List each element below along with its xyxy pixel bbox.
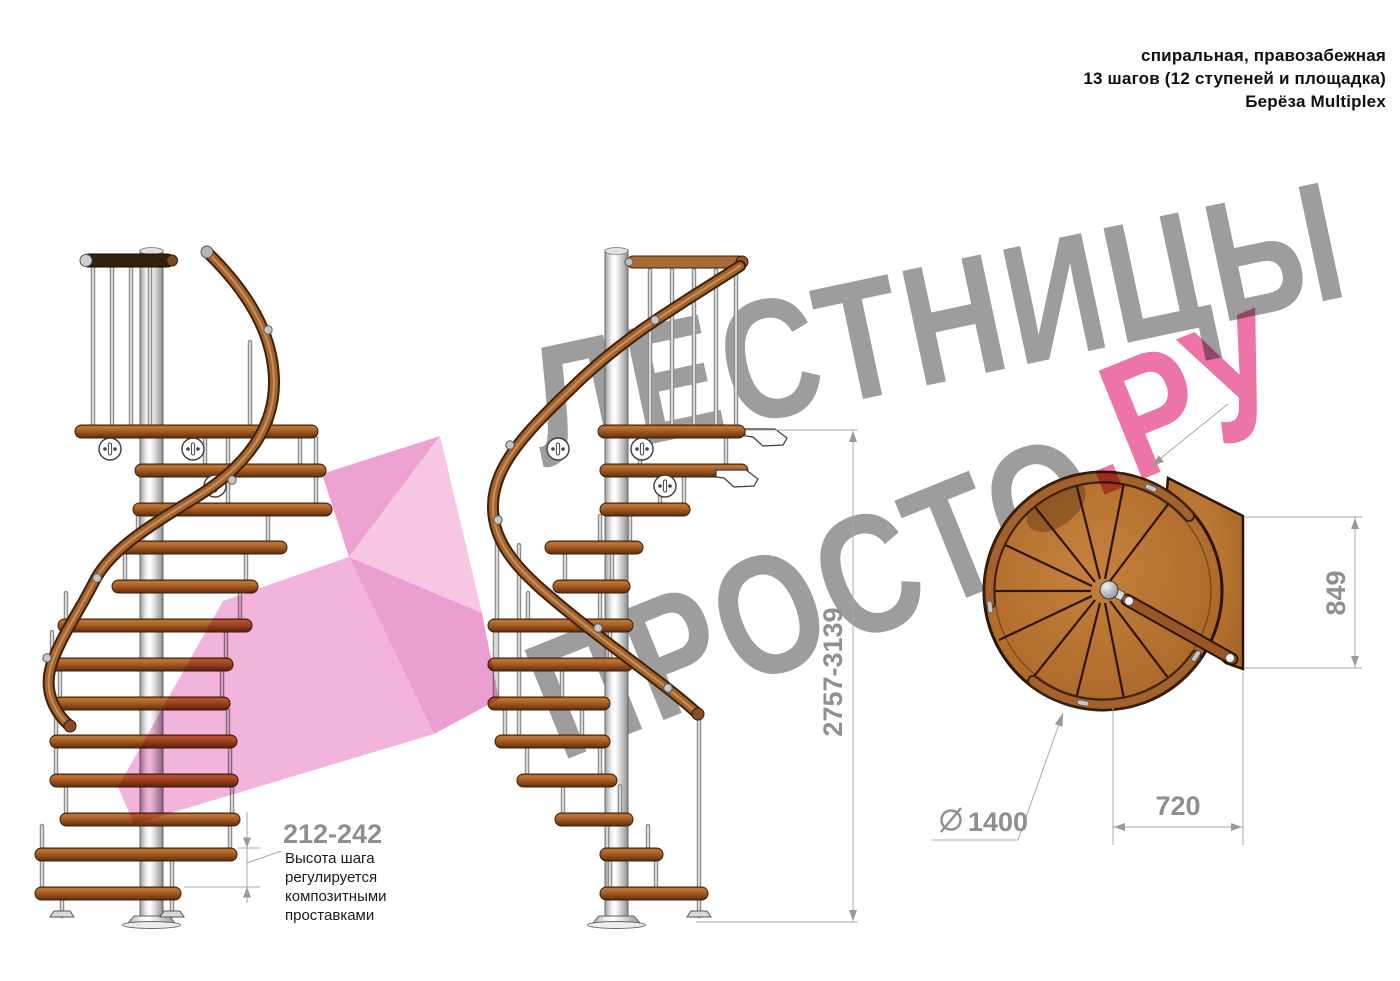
svg-text:Высота шага: Высота шага	[285, 850, 375, 867]
baluster-top	[987, 601, 994, 614]
title-line-type: спиральная, правозабежная	[1083, 44, 1386, 67]
diameter-symbol-icon	[941, 808, 961, 832]
dim-landing-height: 849	[1321, 570, 1351, 615]
svg-text:композитными: композитными	[285, 888, 387, 905]
mounting-bracket	[716, 470, 758, 487]
title-block: спиральная, правозабежная 13 шагов (12 с…	[1083, 44, 1386, 113]
title-line-material: Берёза Multiplex	[1083, 90, 1386, 113]
platform-top-rail	[627, 256, 744, 268]
dim-step-height: 212-242	[283, 819, 382, 849]
platform-board	[598, 425, 745, 438]
title-line-steps: 13 шагов (12 ступеней и площадка)	[1083, 67, 1386, 90]
mounting-disc	[547, 438, 569, 460]
dim-total-height: 2757-3139	[818, 607, 848, 736]
mounting-disc	[654, 475, 676, 497]
dim-diameter: 1400	[968, 807, 1028, 837]
svg-text:проставками: проставками	[285, 907, 374, 924]
platform-board	[75, 425, 318, 438]
baluster-feet	[687, 911, 711, 917]
platform-top-rail	[82, 254, 174, 267]
technical-drawing: ЛЕСТНИЦЫ ПРОСТО	[0, 0, 1400, 976]
mounting-disc	[182, 438, 204, 460]
drawing-stage: ЛЕСТНИЦЫ ПРОСТО	[0, 0, 1400, 981]
dim-landing-width: 720	[1155, 791, 1200, 821]
mounting-disc	[631, 438, 653, 460]
pole-top-ball	[1100, 581, 1118, 599]
mounting-disc	[99, 438, 121, 460]
svg-text:регулируется: регулируется	[285, 869, 377, 886]
step-height-note: Высота шага регулируется композитными пр…	[285, 850, 387, 924]
baluster-feet	[50, 911, 184, 917]
